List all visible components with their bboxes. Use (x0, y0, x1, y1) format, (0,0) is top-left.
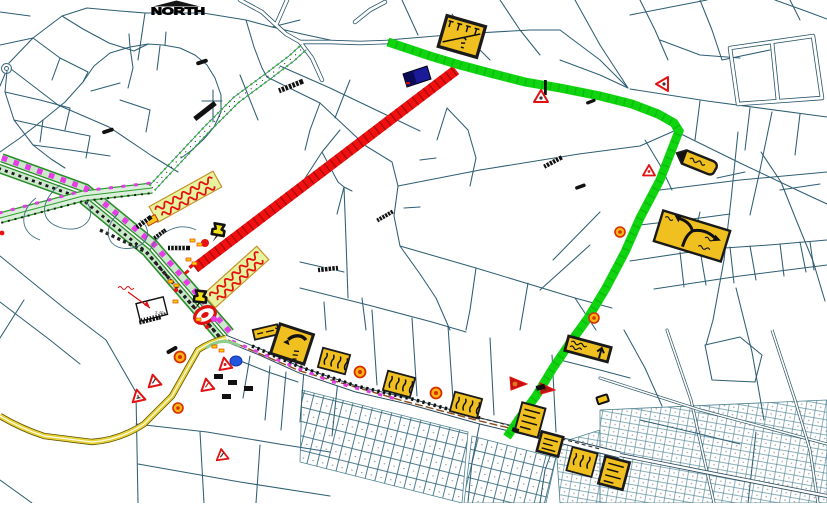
svg-text:3 46: 3 46 (155, 310, 164, 315)
svg-text:NORTH: NORTH (151, 6, 205, 18)
